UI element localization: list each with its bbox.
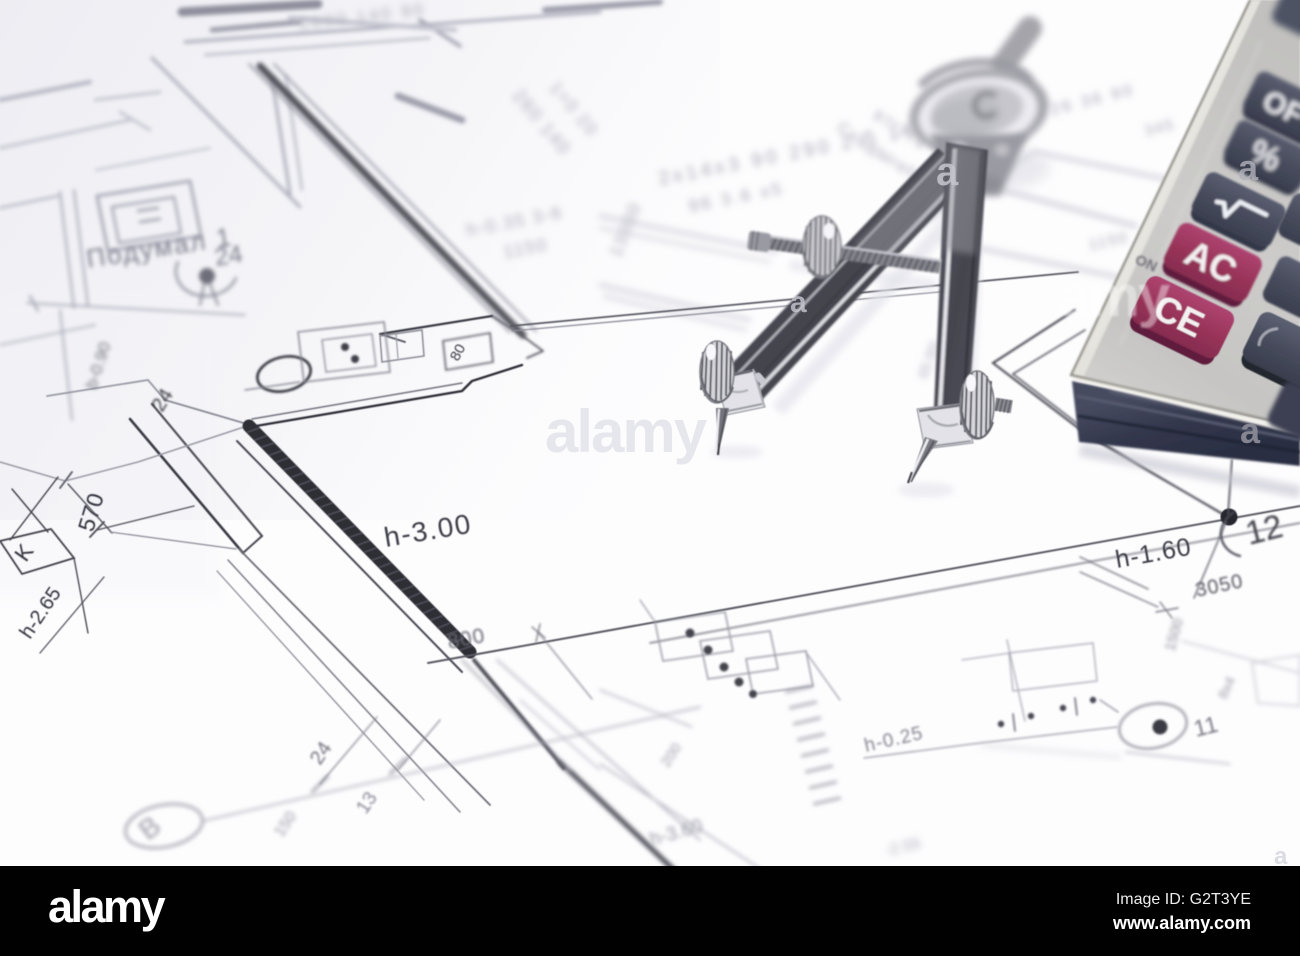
svg-text:a: a: [936, 150, 959, 194]
svg-text:www.alamy.com: www.alamy.com: [1112, 913, 1251, 933]
svg-text:alamy: alamy: [48, 881, 166, 932]
svg-text:a: a: [1240, 410, 1261, 451]
svg-text:amy: amy: [1058, 264, 1170, 329]
svg-text:a: a: [1274, 843, 1288, 870]
svg-text:alamy: alamy: [545, 398, 708, 465]
svg-text:a: a: [1238, 147, 1259, 188]
svg-text:Image ID: G2T3YE: Image ID: G2T3YE: [1116, 891, 1251, 908]
svg-text:24: 24: [213, 240, 245, 272]
svg-text:a: a: [790, 286, 807, 319]
